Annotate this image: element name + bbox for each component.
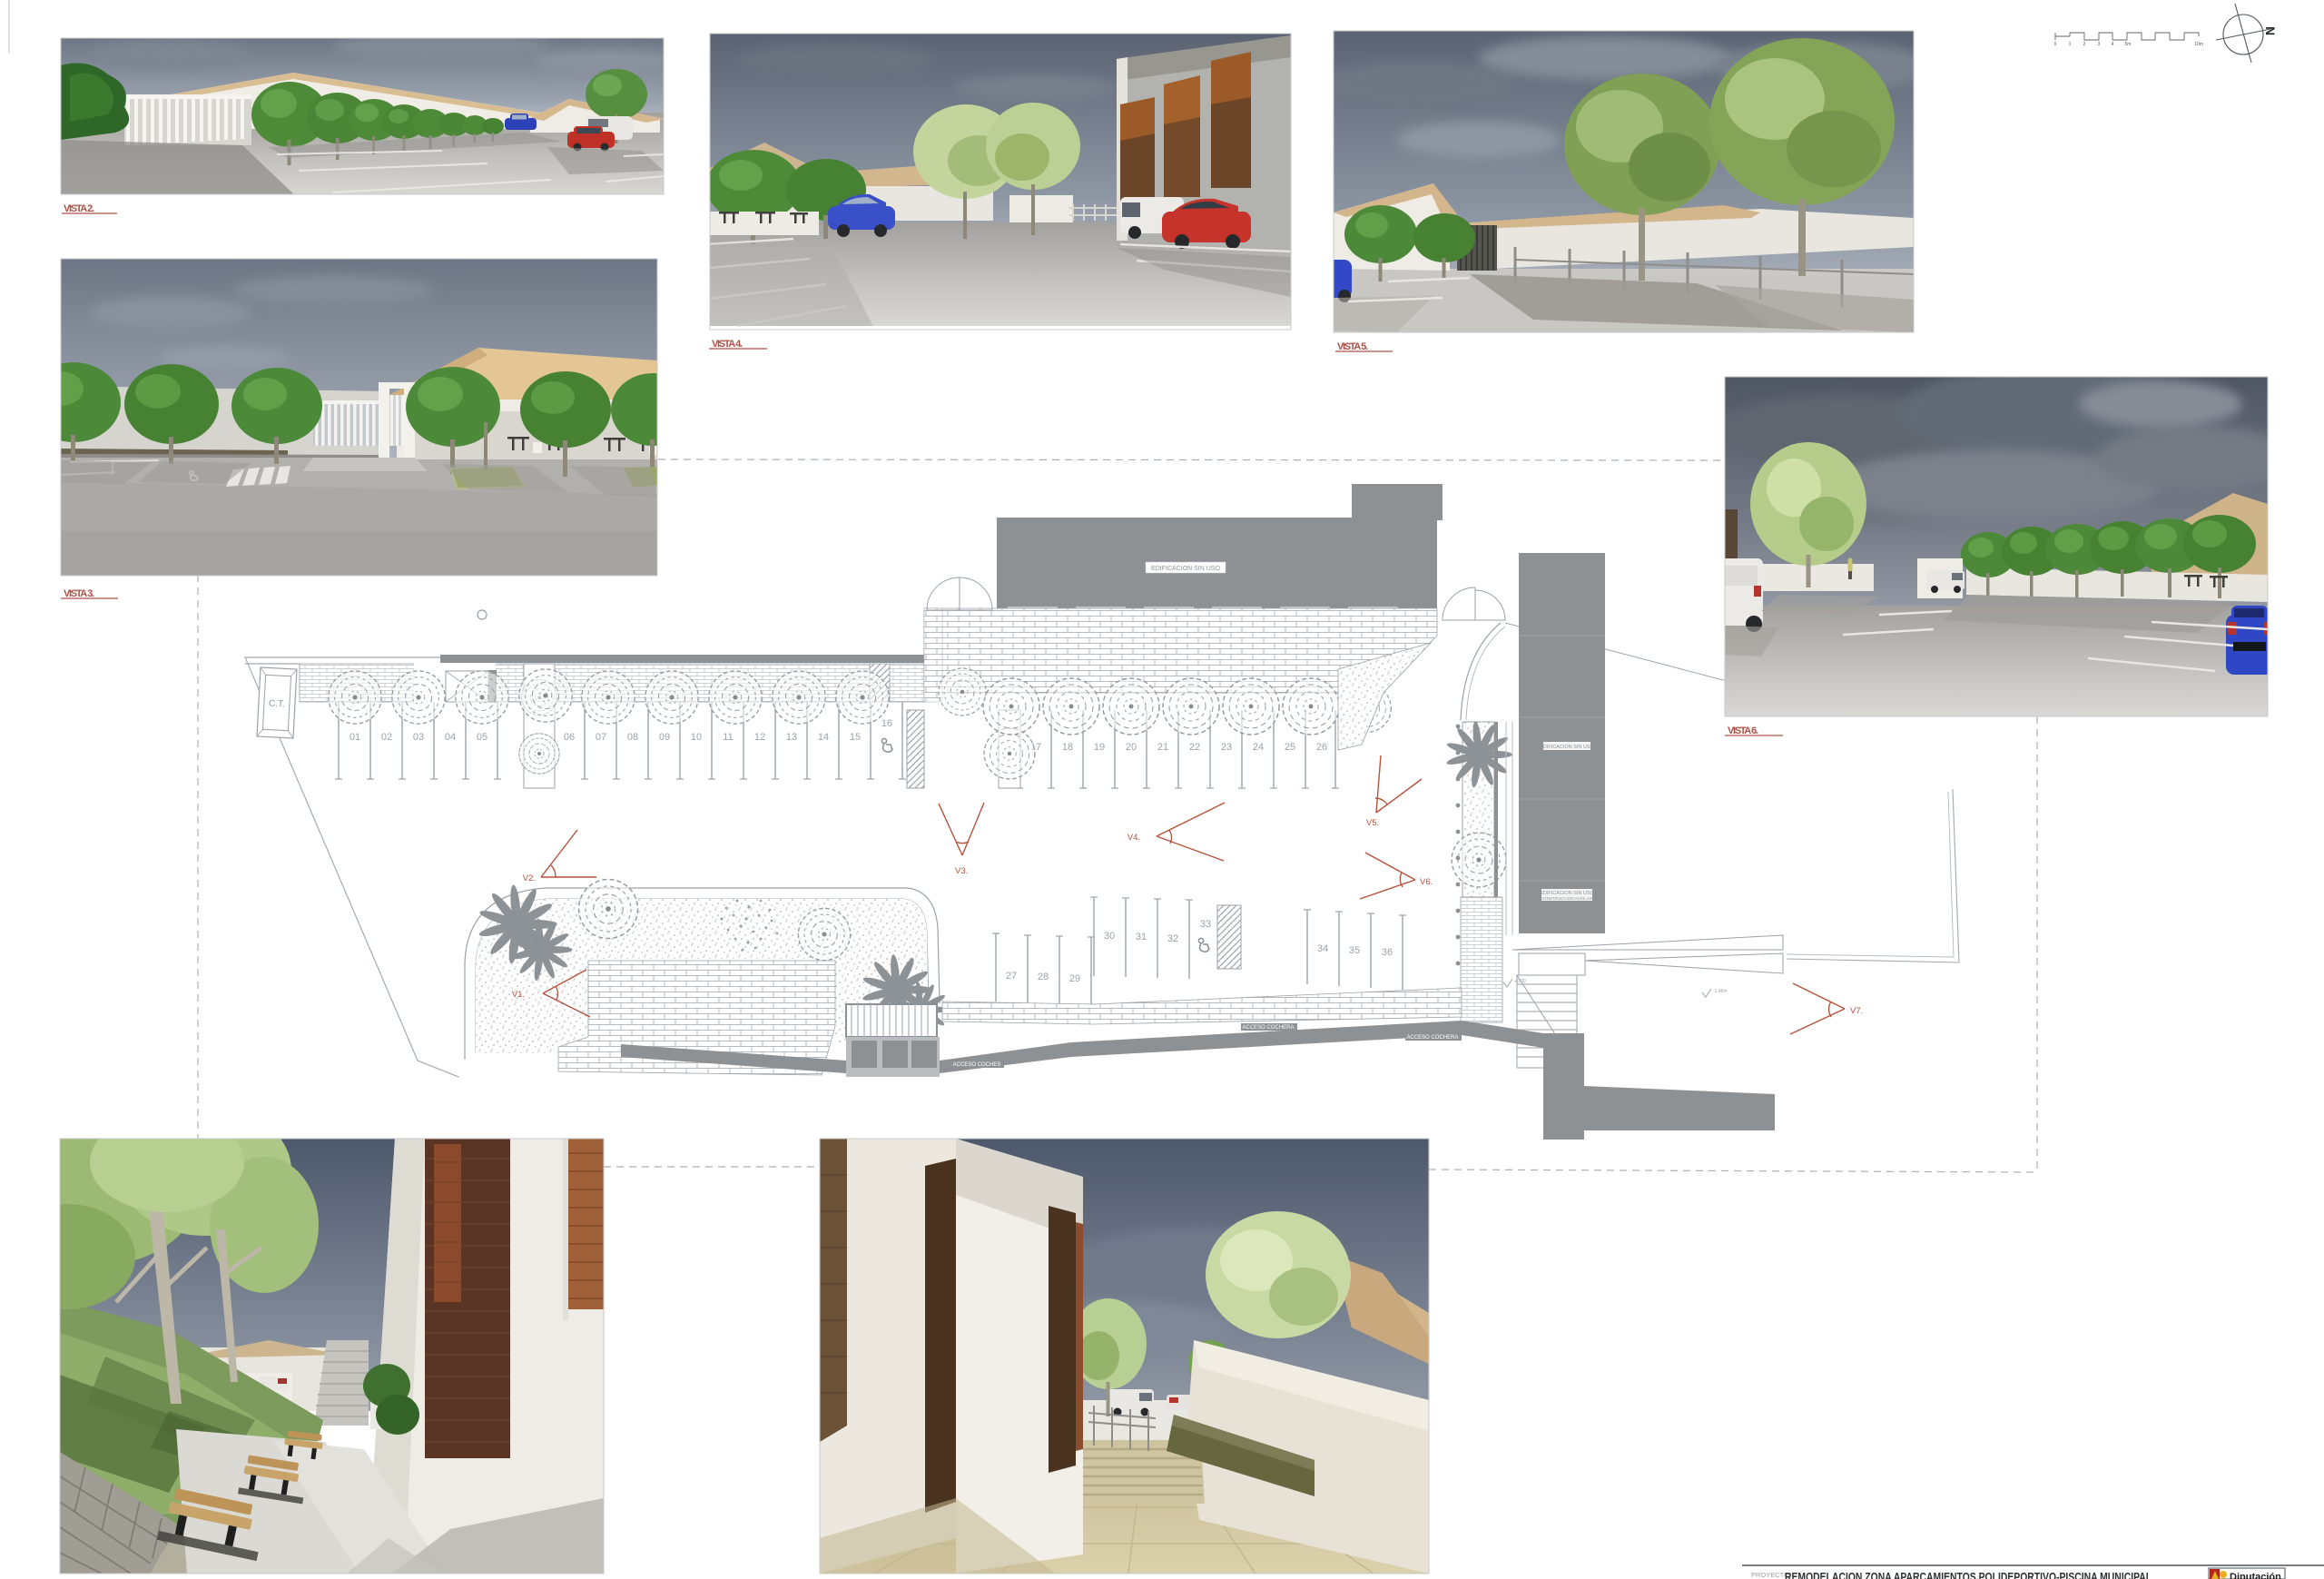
svg-text:36: 36 — [1382, 947, 1393, 958]
svg-text:VISTA 2.: VISTA 2. — [64, 203, 94, 214]
svg-text:05: 05 — [477, 732, 487, 743]
svg-text:ACCESO COCHERA: ACCESO COCHERA — [1242, 1025, 1294, 1031]
svg-text:16: 16 — [881, 718, 892, 729]
svg-text:25: 25 — [1285, 742, 1295, 753]
svg-text:08: 08 — [627, 732, 638, 743]
svg-text:VISTA 5.: VISTA 5. — [1337, 341, 1368, 352]
svg-text:Diputación: Diputación — [2230, 1572, 2281, 1579]
svg-text:13: 13 — [786, 732, 797, 743]
svg-text:14: 14 — [818, 732, 829, 743]
svg-text:23: 23 — [1221, 742, 1232, 753]
svg-text:C.T.: C.T. — [269, 699, 285, 710]
svg-text:EDIFICACION SIN USO: EDIFICACION SIN USO — [1151, 566, 1220, 572]
svg-text:19: 19 — [1094, 742, 1105, 753]
svg-text:18: 18 — [1062, 742, 1073, 753]
svg-text:31: 31 — [1136, 932, 1147, 942]
svg-text:34: 34 — [1317, 943, 1328, 954]
svg-text:21: 21 — [1157, 742, 1168, 753]
svg-text:4: 4 — [2112, 42, 2114, 47]
svg-text:15: 15 — [850, 732, 861, 743]
svg-text:24: 24 — [1253, 742, 1264, 753]
svg-text:V1.: V1. — [512, 990, 525, 1000]
svg-text:10m: 10m — [2194, 42, 2203, 47]
svg-text:03: 03 — [413, 732, 424, 743]
svg-text:2: 2 — [2083, 42, 2086, 47]
svg-text:+0.00: +0.00 — [1514, 979, 1526, 984]
svg-text:20: 20 — [1126, 742, 1137, 753]
svg-text:V4.: V4. — [1128, 833, 1140, 843]
svg-text:26: 26 — [1316, 742, 1327, 753]
svg-text:VISTA 6.: VISTA 6. — [1728, 725, 1758, 736]
svg-text:29: 29 — [1069, 973, 1080, 984]
svg-text:09: 09 — [659, 732, 670, 743]
svg-text:5m: 5m — [2125, 42, 2132, 47]
svg-text:CONSTRUCCION AUXILIAR: CONSTRUCCION AUXILIAR — [1541, 896, 1594, 901]
svg-text:35: 35 — [1349, 945, 1360, 956]
svg-text:30: 30 — [1104, 931, 1115, 942]
svg-text:0: 0 — [2054, 42, 2057, 47]
svg-text:04: 04 — [445, 732, 456, 743]
svg-text:V5.: V5. — [1366, 818, 1379, 828]
svg-text:10: 10 — [691, 732, 702, 743]
svg-text:-1.46m: -1.46m — [1713, 989, 1728, 994]
svg-text:32: 32 — [1167, 933, 1178, 944]
svg-text:V3.: V3. — [955, 866, 968, 876]
svg-text:07: 07 — [596, 732, 606, 743]
svg-text:N: N — [2263, 26, 2278, 35]
svg-text:V2.: V2. — [523, 873, 536, 883]
svg-text:01: 01 — [350, 732, 360, 743]
svg-text:REMODELACION ZONA APARCAMIENTO: REMODELACION ZONA APARCAMIENTOS POLIDEPO… — [1785, 1570, 2154, 1579]
svg-text:V7.: V7. — [1850, 1006, 1863, 1016]
svg-text:02: 02 — [381, 732, 392, 743]
svg-text:ACCESO COCHERA: ACCESO COCHERA — [1406, 1035, 1458, 1041]
svg-text:12: 12 — [754, 732, 765, 743]
svg-text:06: 06 — [564, 732, 575, 743]
svg-text:VISTA 4.: VISTA 4. — [712, 339, 743, 350]
svg-text:22: 22 — [1189, 742, 1200, 753]
svg-text:11: 11 — [723, 732, 733, 743]
svg-text:ACCESO COCHES: ACCESO COCHES — [953, 1062, 1001, 1068]
svg-text:1: 1 — [2069, 42, 2072, 47]
svg-text:28: 28 — [1038, 972, 1049, 982]
svg-text:27: 27 — [1006, 971, 1017, 982]
svg-text:EDIFICACION SIN USO: EDIFICACION SIN USO — [1540, 745, 1594, 750]
svg-text:VISTA 3.: VISTA 3. — [64, 588, 94, 599]
svg-text:33: 33 — [1200, 919, 1211, 930]
svg-text:V6.: V6. — [1420, 877, 1433, 887]
svg-text:3: 3 — [2098, 42, 2101, 47]
